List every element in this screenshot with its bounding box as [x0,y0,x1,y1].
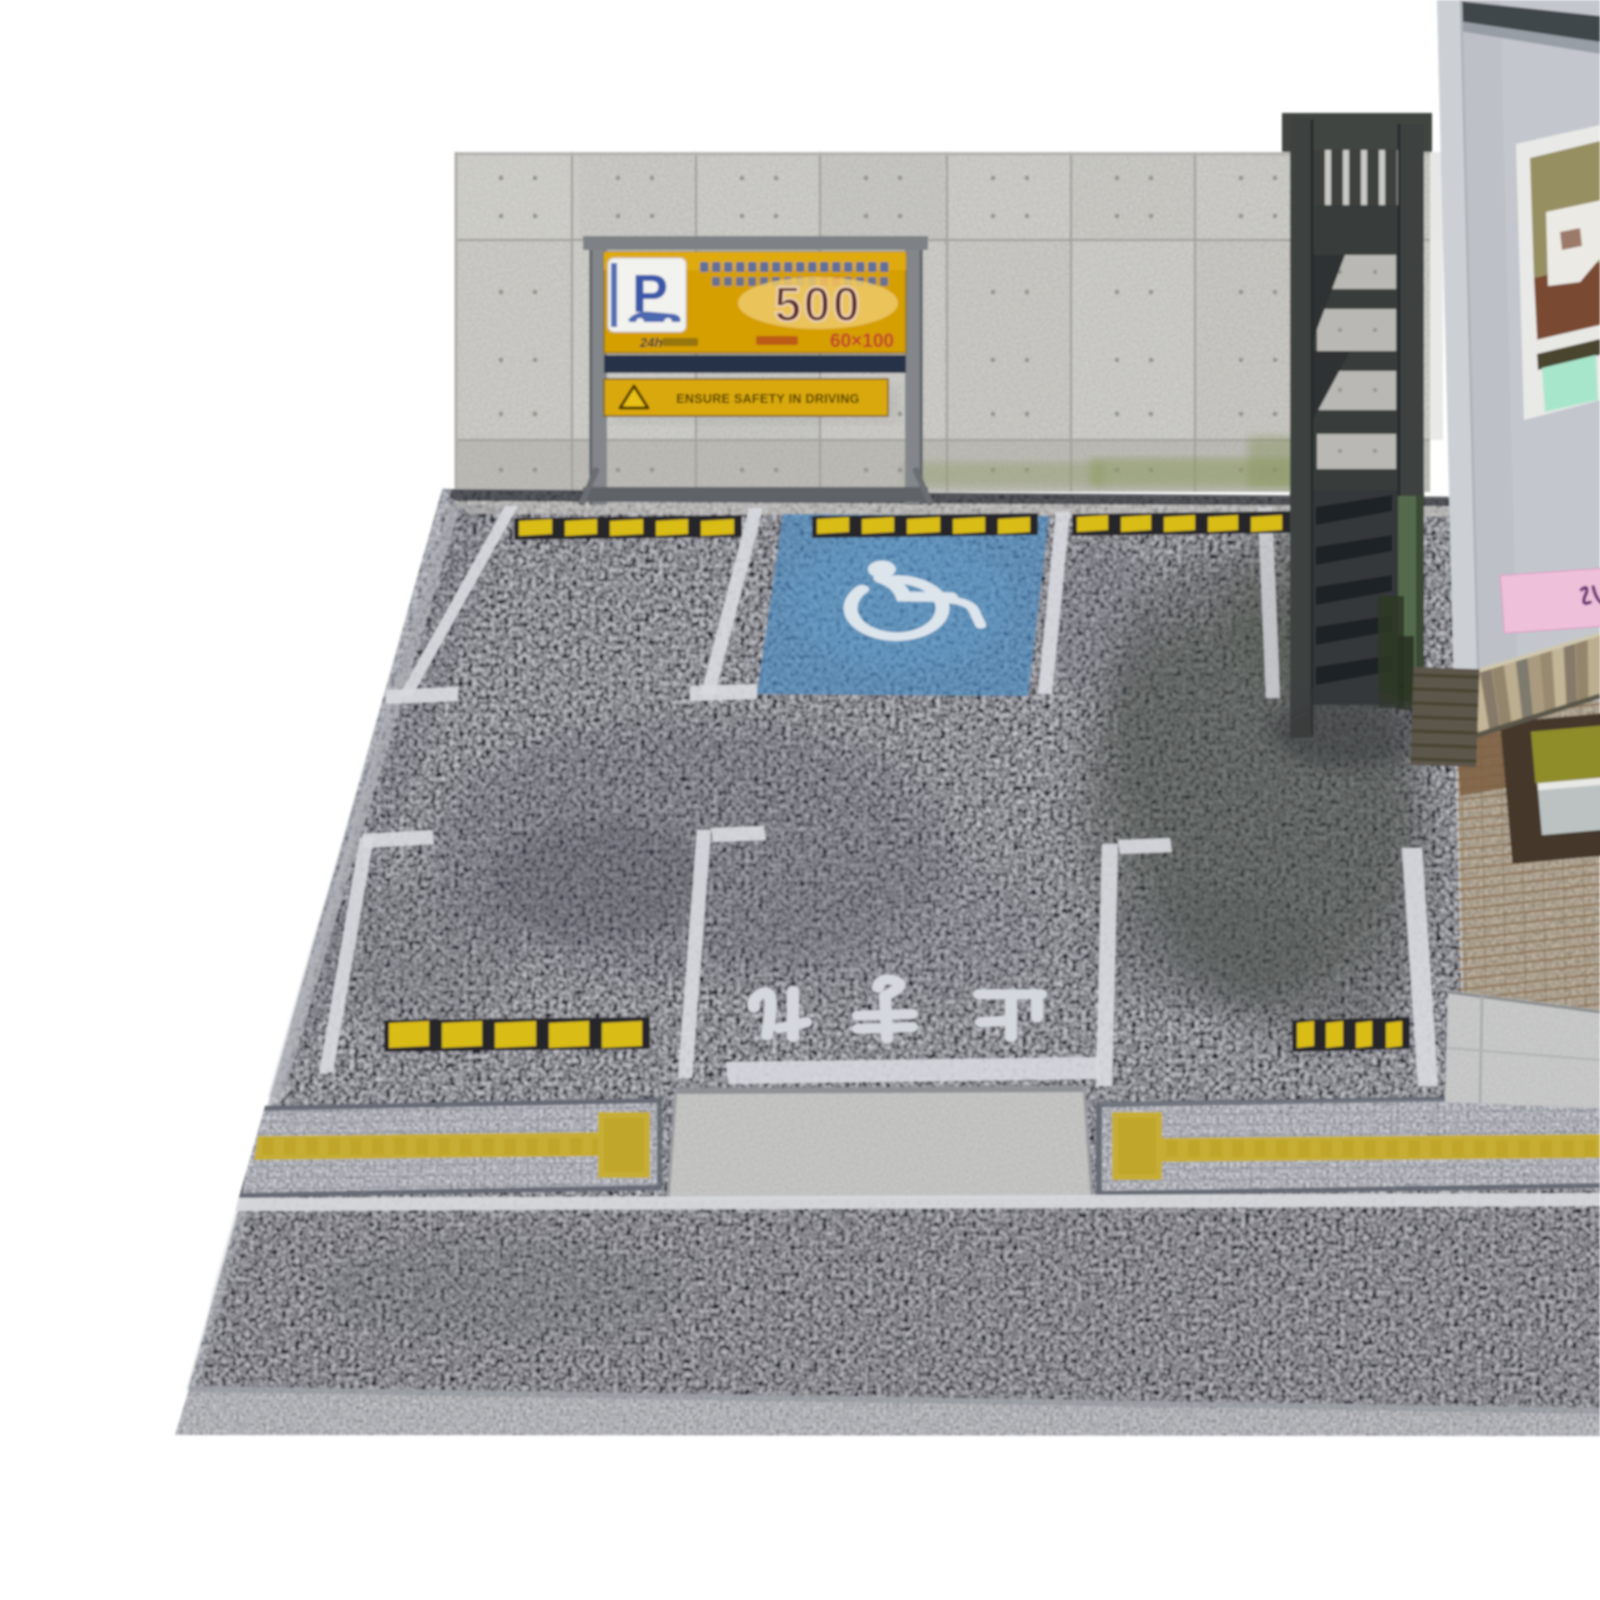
svg-text:500: 500 [774,278,862,332]
svg-text:24h: 24h [639,335,662,350]
svg-text:ENSURE SAFETY IN DRIVING: ENSURE SAFETY IN DRIVING [676,392,859,406]
svg-text:60×100: 60×100 [830,331,894,352]
